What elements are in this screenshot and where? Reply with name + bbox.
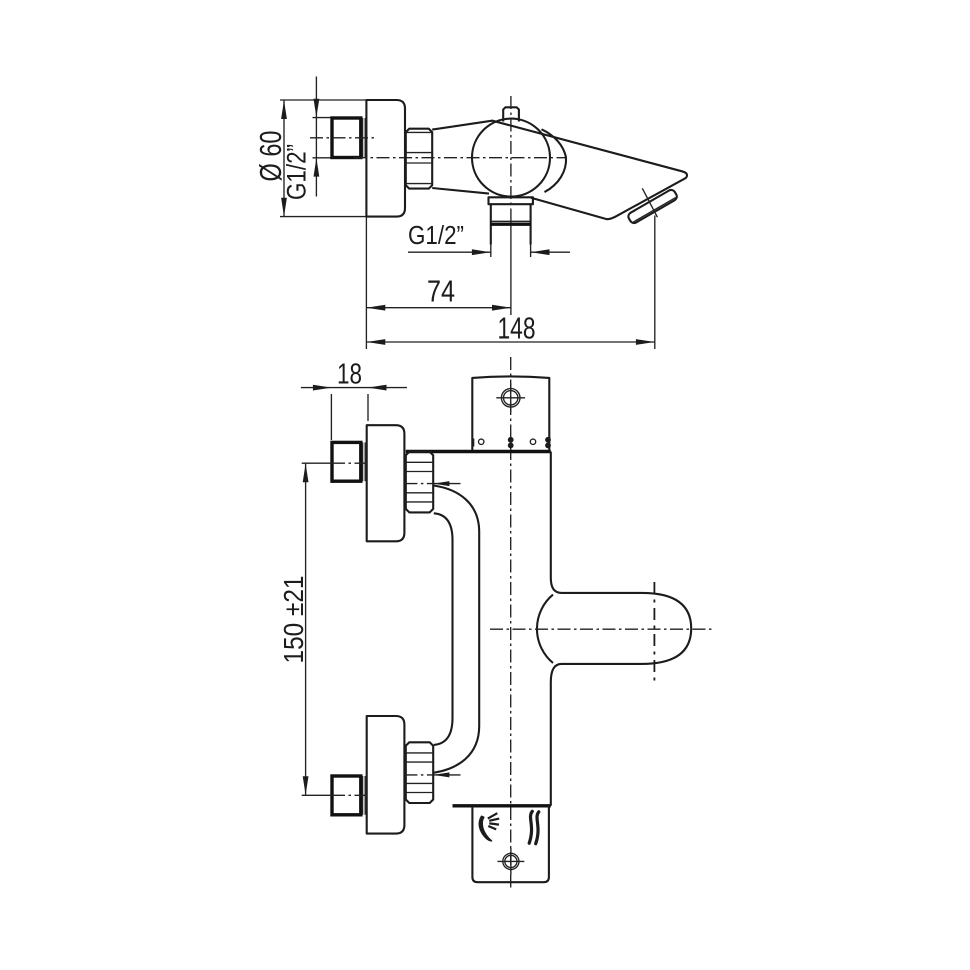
svg-text:74: 74: [427, 274, 455, 309]
svg-text:148: 148: [498, 311, 536, 346]
svg-text:G1/2”: G1/2”: [408, 222, 464, 250]
svg-text:18: 18: [337, 359, 362, 391]
svg-text:150 ±21: 150 ±21: [278, 576, 309, 664]
svg-text:G1/2”: G1/2”: [282, 144, 312, 200]
